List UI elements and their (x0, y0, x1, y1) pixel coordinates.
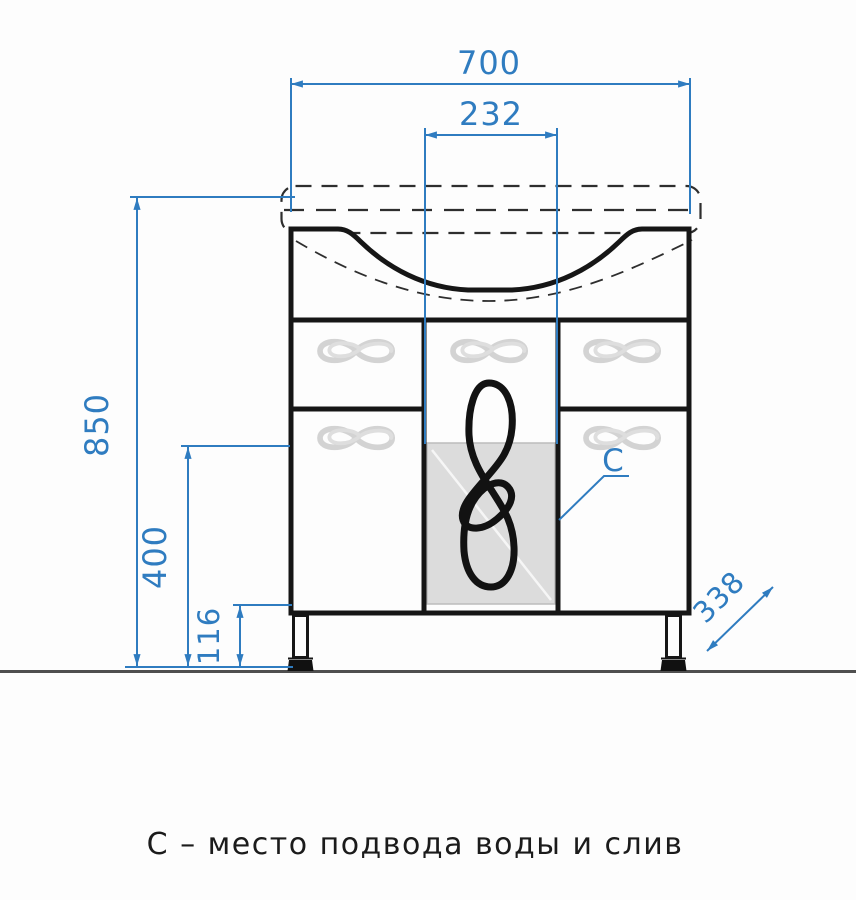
connection-marker-label: C (602, 443, 624, 479)
dimension-label-700: 700 (457, 44, 521, 82)
dimension-label-400: 400 (136, 525, 174, 589)
leg-right-foot (661, 660, 687, 671)
dimension-label-232: 232 (459, 95, 523, 133)
dimension-label-116: 116 (192, 607, 226, 665)
leg-left-foot (288, 660, 314, 671)
caption-text: С – место подвода воды и слив (147, 827, 684, 862)
dimension-label-850: 850 (78, 393, 116, 457)
drawing-svg: 700 232 850 400 116 338 C (0, 0, 856, 900)
leg-left (294, 616, 308, 658)
dimension-label-338: 338 (686, 564, 751, 629)
leg-right (667, 616, 681, 658)
vanity-dimension-drawing: 700 232 850 400 116 338 C С – место подв… (0, 0, 856, 900)
floor-line (0, 670, 856, 673)
